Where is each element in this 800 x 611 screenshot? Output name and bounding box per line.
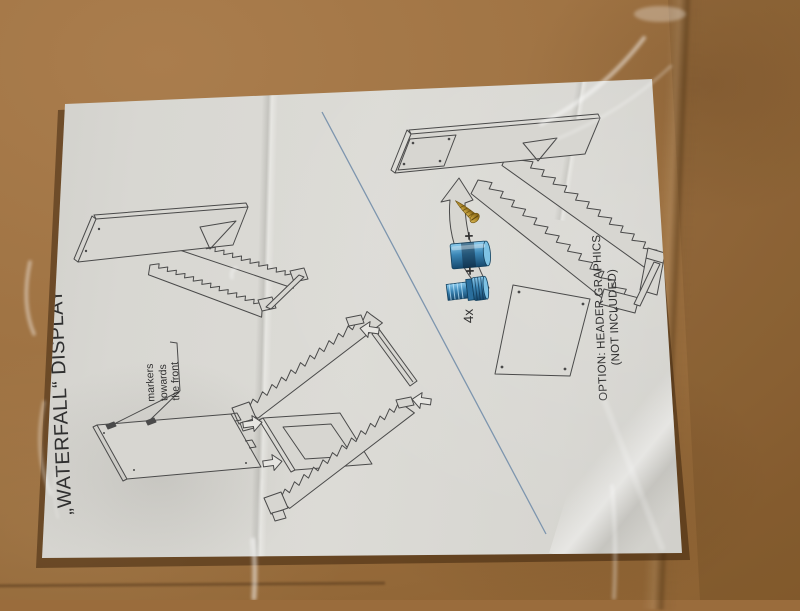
crossbar-strut <box>372 329 417 386</box>
assembled-display-diagram <box>74 203 308 339</box>
markers-note-label: markers towards the front <box>143 334 186 402</box>
back-panel <box>395 118 600 173</box>
plus-sign: + <box>462 261 479 282</box>
photo-instruction-sheet-on-cardboard-box: „WATERFALL“ DISPLAY markers towards the … <box>0 0 800 600</box>
markers-note-line3: the front <box>168 334 183 400</box>
base-panel <box>93 413 261 481</box>
header-graphics-panel <box>495 285 590 376</box>
waterfall-rail <box>232 308 429 511</box>
final-assembly-diagram <box>391 114 665 336</box>
fastener-quantity-label: 4x <box>460 296 480 337</box>
plus-sign: + <box>461 226 478 247</box>
